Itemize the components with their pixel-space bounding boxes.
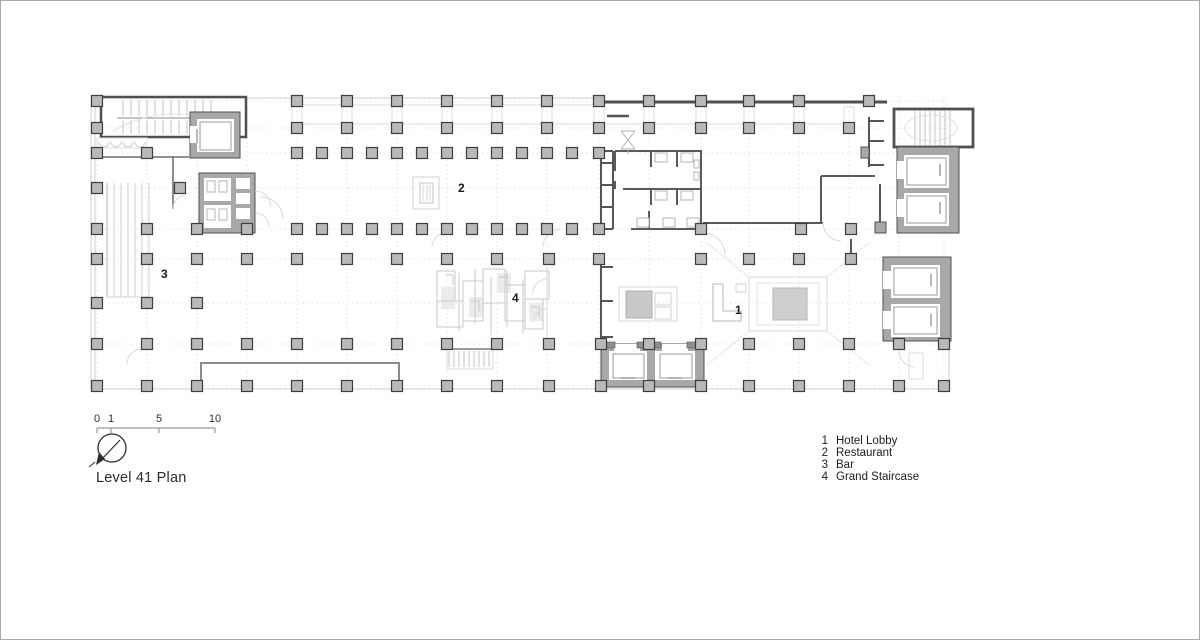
column	[192, 254, 203, 265]
column	[567, 148, 578, 159]
column	[644, 381, 655, 392]
column	[442, 254, 453, 265]
elevator-bank-east	[883, 257, 951, 341]
elevator-bank-top-right	[897, 147, 959, 233]
column	[492, 96, 503, 107]
column	[844, 123, 855, 134]
colonnade-guides	[291, 105, 853, 124]
column	[594, 123, 605, 134]
door-swing	[173, 195, 187, 209]
column	[342, 123, 353, 134]
column	[594, 96, 605, 107]
column	[567, 224, 578, 235]
column	[492, 123, 503, 134]
room-label-bar: 3	[161, 267, 168, 281]
column	[696, 96, 707, 107]
restroom-walls	[615, 151, 701, 229]
shaft-2	[891, 304, 940, 337]
column	[367, 148, 378, 159]
column	[92, 123, 103, 134]
column	[392, 123, 403, 134]
stair-path-arc	[905, 115, 957, 141]
column	[544, 254, 555, 265]
column	[894, 381, 905, 392]
column	[696, 123, 707, 134]
duct-east	[869, 117, 884, 167]
column	[292, 381, 303, 392]
column	[794, 123, 805, 134]
column	[542, 96, 553, 107]
door-opening-1	[897, 161, 905, 179]
column	[142, 298, 153, 309]
bar-counter	[107, 183, 149, 297]
scale-bar-line	[97, 428, 215, 433]
column	[939, 381, 950, 392]
column	[544, 381, 555, 392]
column	[92, 339, 103, 350]
column	[92, 381, 103, 392]
north-arrow-tail	[89, 462, 95, 467]
column	[794, 96, 805, 107]
column	[292, 96, 303, 107]
column	[442, 148, 453, 159]
column	[517, 148, 528, 159]
rug	[626, 291, 652, 318]
door-opening-2	[897, 199, 905, 217]
column	[517, 224, 528, 235]
column	[696, 381, 707, 392]
column	[696, 224, 707, 235]
duct-block-2	[875, 222, 886, 233]
column	[292, 339, 303, 350]
legend-num-2: 2	[822, 447, 828, 459]
column	[292, 224, 303, 235]
column	[492, 381, 503, 392]
column	[894, 339, 905, 350]
column	[392, 224, 403, 235]
column	[292, 254, 303, 265]
column	[317, 224, 328, 235]
grand-staircase	[437, 267, 549, 339]
shaft-1	[609, 351, 647, 380]
column	[392, 96, 403, 107]
north-arrow-head	[96, 452, 105, 465]
scale-bar: 0 1 5 10	[94, 413, 221, 433]
lobby-duct-ladder	[601, 263, 613, 342]
column	[939, 339, 950, 350]
column	[442, 381, 453, 392]
column	[794, 254, 805, 265]
column	[392, 148, 403, 159]
room-label-hotel-lobby: 1	[735, 303, 742, 317]
staircase-landings	[441, 273, 543, 321]
column	[544, 339, 555, 350]
door-opening-1	[614, 344, 640, 352]
door-swing	[823, 223, 841, 241]
scale-tick-0: 0	[94, 413, 100, 425]
fixture-scallops	[99, 142, 145, 147]
scale-tick-5: 5	[156, 413, 162, 425]
column	[392, 254, 403, 265]
legend-label-hotel-lobby: Hotel Lobby	[836, 435, 898, 447]
floor-plan-drawing: 1 2 3 4 0 1 5 10 Level 41 Plan 1 Hotel L…	[1, 1, 1200, 640]
legend-num-4: 4	[822, 471, 829, 483]
column	[317, 148, 328, 159]
stair-treads	[449, 351, 489, 367]
counter-lines	[107, 183, 149, 297]
restaurant-service-station	[413, 177, 439, 209]
column	[864, 96, 875, 107]
column	[492, 254, 503, 265]
column	[492, 148, 503, 159]
duct-block	[861, 147, 869, 158]
column	[442, 123, 453, 134]
column	[417, 224, 428, 235]
column	[744, 254, 755, 265]
column	[844, 339, 855, 350]
floor-plan-sheet: 1 2 3 4 0 1 5 10 Level 41 Plan 1 Hotel L…	[0, 0, 1200, 640]
column	[392, 339, 403, 350]
shaft-2	[904, 193, 949, 226]
column	[844, 381, 855, 392]
column	[92, 254, 103, 265]
lower-stair	[447, 349, 493, 369]
column	[192, 224, 203, 235]
column	[142, 148, 153, 159]
scale-tick-10: 10	[209, 413, 221, 425]
room-legend: 1 Hotel Lobby 2 Restaurant 3 Bar 4 Grand…	[822, 435, 920, 483]
column	[342, 96, 353, 107]
column	[594, 254, 605, 265]
column	[142, 224, 153, 235]
column	[192, 339, 203, 350]
scale-tick-1: 1	[108, 413, 114, 425]
column	[142, 381, 153, 392]
shaft-2	[655, 351, 695, 380]
column	[242, 224, 253, 235]
column	[92, 96, 103, 107]
column	[744, 339, 755, 350]
medallion-center	[773, 288, 807, 320]
column	[142, 254, 153, 265]
shaft-1	[891, 265, 940, 298]
legend-num-3: 3	[822, 459, 828, 471]
plan-title: Level 41 Plan	[96, 470, 186, 486]
column	[846, 254, 857, 265]
north-arrow-icon	[89, 434, 126, 467]
legend-num-1: 1	[822, 435, 828, 447]
column	[696, 339, 707, 350]
column	[442, 96, 453, 107]
column	[175, 183, 186, 194]
column	[192, 298, 203, 309]
pilasters	[292, 107, 854, 124]
column	[392, 381, 403, 392]
column	[542, 224, 553, 235]
elevator-top-left	[190, 112, 240, 158]
column	[342, 254, 353, 265]
column	[417, 148, 428, 159]
column	[744, 123, 755, 134]
column	[242, 381, 253, 392]
column	[794, 381, 805, 392]
column	[467, 148, 478, 159]
column	[367, 224, 378, 235]
legend-label-bar: Bar	[836, 459, 854, 471]
elevator-shaft	[197, 119, 234, 152]
duct-ladder	[601, 151, 613, 229]
top-colonnade-band	[291, 105, 854, 124]
column	[92, 183, 103, 194]
door-opening-2	[662, 344, 688, 352]
column	[846, 224, 857, 235]
column	[644, 96, 655, 107]
column	[744, 381, 755, 392]
shaft-1	[904, 155, 949, 188]
column	[142, 339, 153, 350]
column	[594, 148, 605, 159]
column	[542, 148, 553, 159]
room-label-restaurant: 2	[458, 181, 465, 195]
legend-label-grand-staircase: Grand Staircase	[836, 471, 919, 483]
column	[794, 339, 805, 350]
room-label-grand-staircase: 4	[512, 291, 519, 305]
column	[744, 96, 755, 107]
column	[92, 148, 103, 159]
column	[594, 224, 605, 235]
column	[342, 381, 353, 392]
door-opening-2	[883, 311, 891, 329]
column	[242, 254, 253, 265]
restroom-core-top-left	[199, 173, 271, 233]
column	[92, 224, 103, 235]
lobby-seating-group	[619, 287, 677, 321]
column	[596, 339, 607, 350]
column	[242, 339, 253, 350]
column	[342, 224, 353, 235]
column	[644, 339, 655, 350]
column	[192, 381, 203, 392]
column	[92, 298, 103, 309]
column	[442, 224, 453, 235]
column	[596, 381, 607, 392]
column	[492, 224, 503, 235]
column	[492, 339, 503, 350]
legend-label-restaurant: Restaurant	[836, 447, 893, 459]
column	[292, 148, 303, 159]
column	[796, 224, 807, 235]
column	[442, 339, 453, 350]
door-opening-1	[883, 271, 891, 289]
column	[644, 123, 655, 134]
restroom-door-swings	[255, 191, 271, 227]
column	[696, 254, 707, 265]
column	[292, 123, 303, 134]
column	[467, 224, 478, 235]
column	[542, 123, 553, 134]
column	[342, 148, 353, 159]
column	[342, 339, 353, 350]
